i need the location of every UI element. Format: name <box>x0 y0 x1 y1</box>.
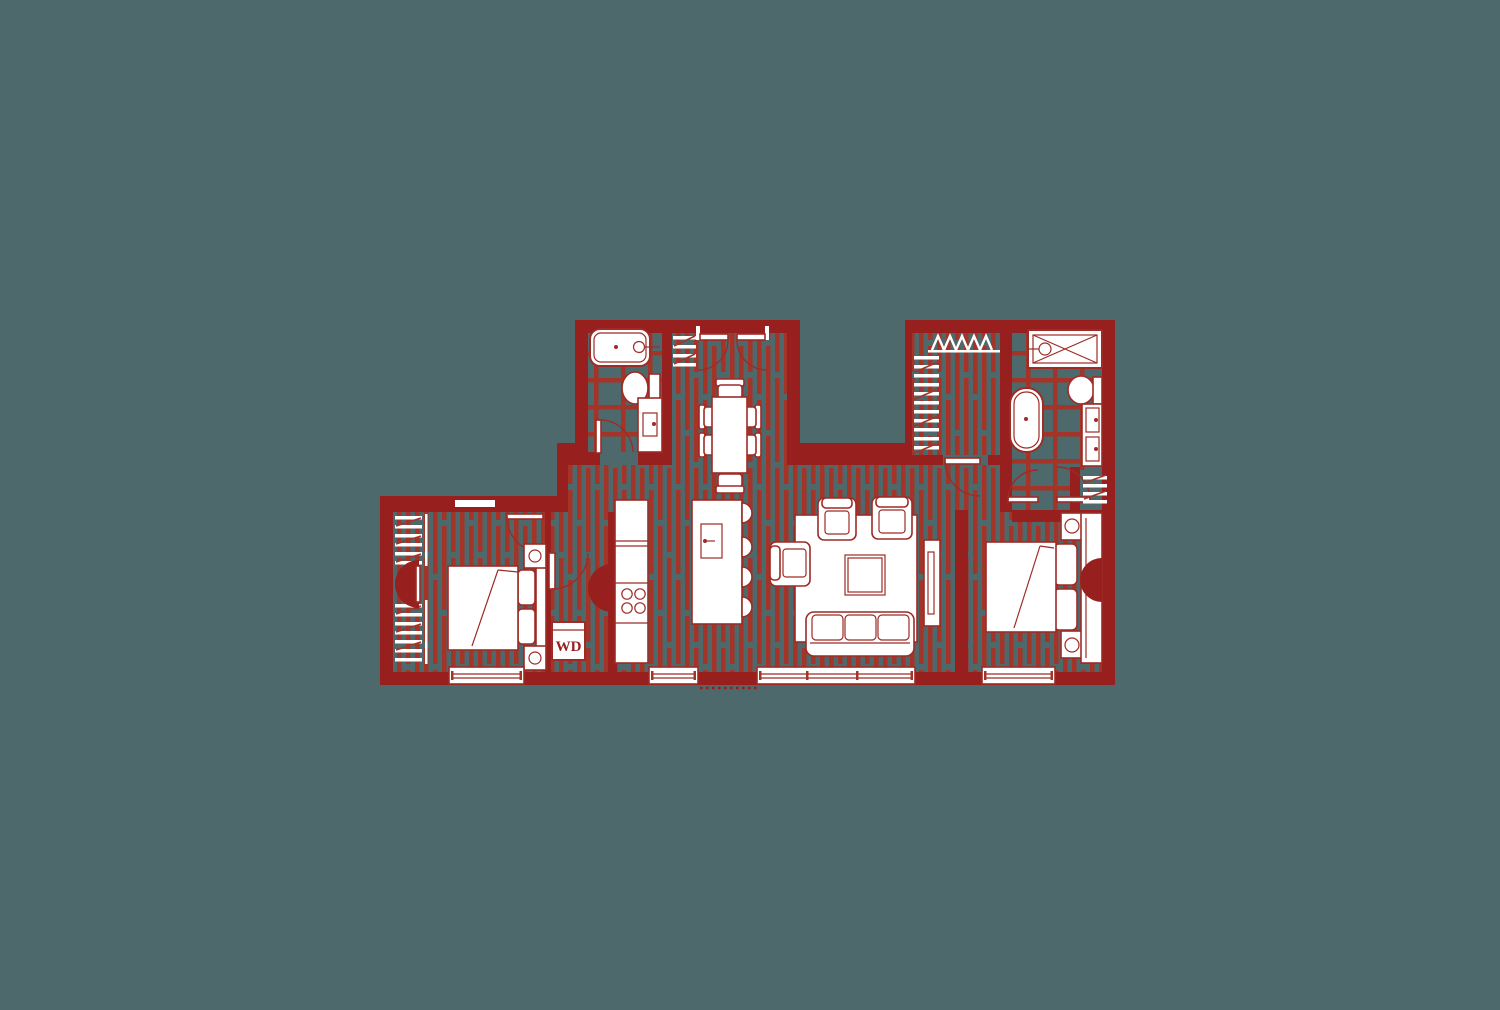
armchair <box>872 497 912 539</box>
window <box>649 667 698 684</box>
door-leaf <box>416 566 420 602</box>
headboard <box>536 566 546 650</box>
kitchen-island <box>692 500 742 624</box>
door-leaf <box>945 458 980 464</box>
door-leaf <box>737 334 765 340</box>
hallway-floor <box>905 465 1000 512</box>
dining-chair <box>718 474 742 487</box>
window <box>757 667 915 684</box>
toilet <box>1068 376 1094 404</box>
tv-console <box>924 540 940 626</box>
pillow <box>518 609 535 644</box>
door-leaf <box>1008 497 1038 502</box>
window <box>982 667 1055 684</box>
nightstand <box>1061 513 1083 540</box>
floor-plan-page: WD <box>0 0 1500 1010</box>
dining-table <box>712 397 747 473</box>
armchair <box>818 498 856 540</box>
closet-rod <box>928 350 1000 353</box>
pillow <box>1054 544 1077 585</box>
washer-dryer-label: WD <box>556 639 582 655</box>
floor-plan: WD <box>0 0 1500 1010</box>
nightstand <box>524 646 546 670</box>
vanity-sink <box>638 398 662 452</box>
living-room <box>770 497 940 656</box>
bathtub <box>590 329 650 366</box>
pillow <box>1054 589 1077 630</box>
armchair <box>770 542 810 586</box>
door-leaf <box>700 334 728 340</box>
mattress <box>448 566 518 650</box>
wall-niche <box>455 500 495 507</box>
door-leaf <box>596 420 601 453</box>
nightstand <box>524 544 546 568</box>
closet-door-leaf <box>507 514 543 519</box>
nightstand <box>1061 631 1083 658</box>
mattress <box>986 542 1056 632</box>
window <box>449 667 524 684</box>
door-leaf <box>549 553 555 589</box>
sofa <box>806 612 914 656</box>
kitchen-counter <box>615 500 648 663</box>
pillow <box>518 570 535 605</box>
